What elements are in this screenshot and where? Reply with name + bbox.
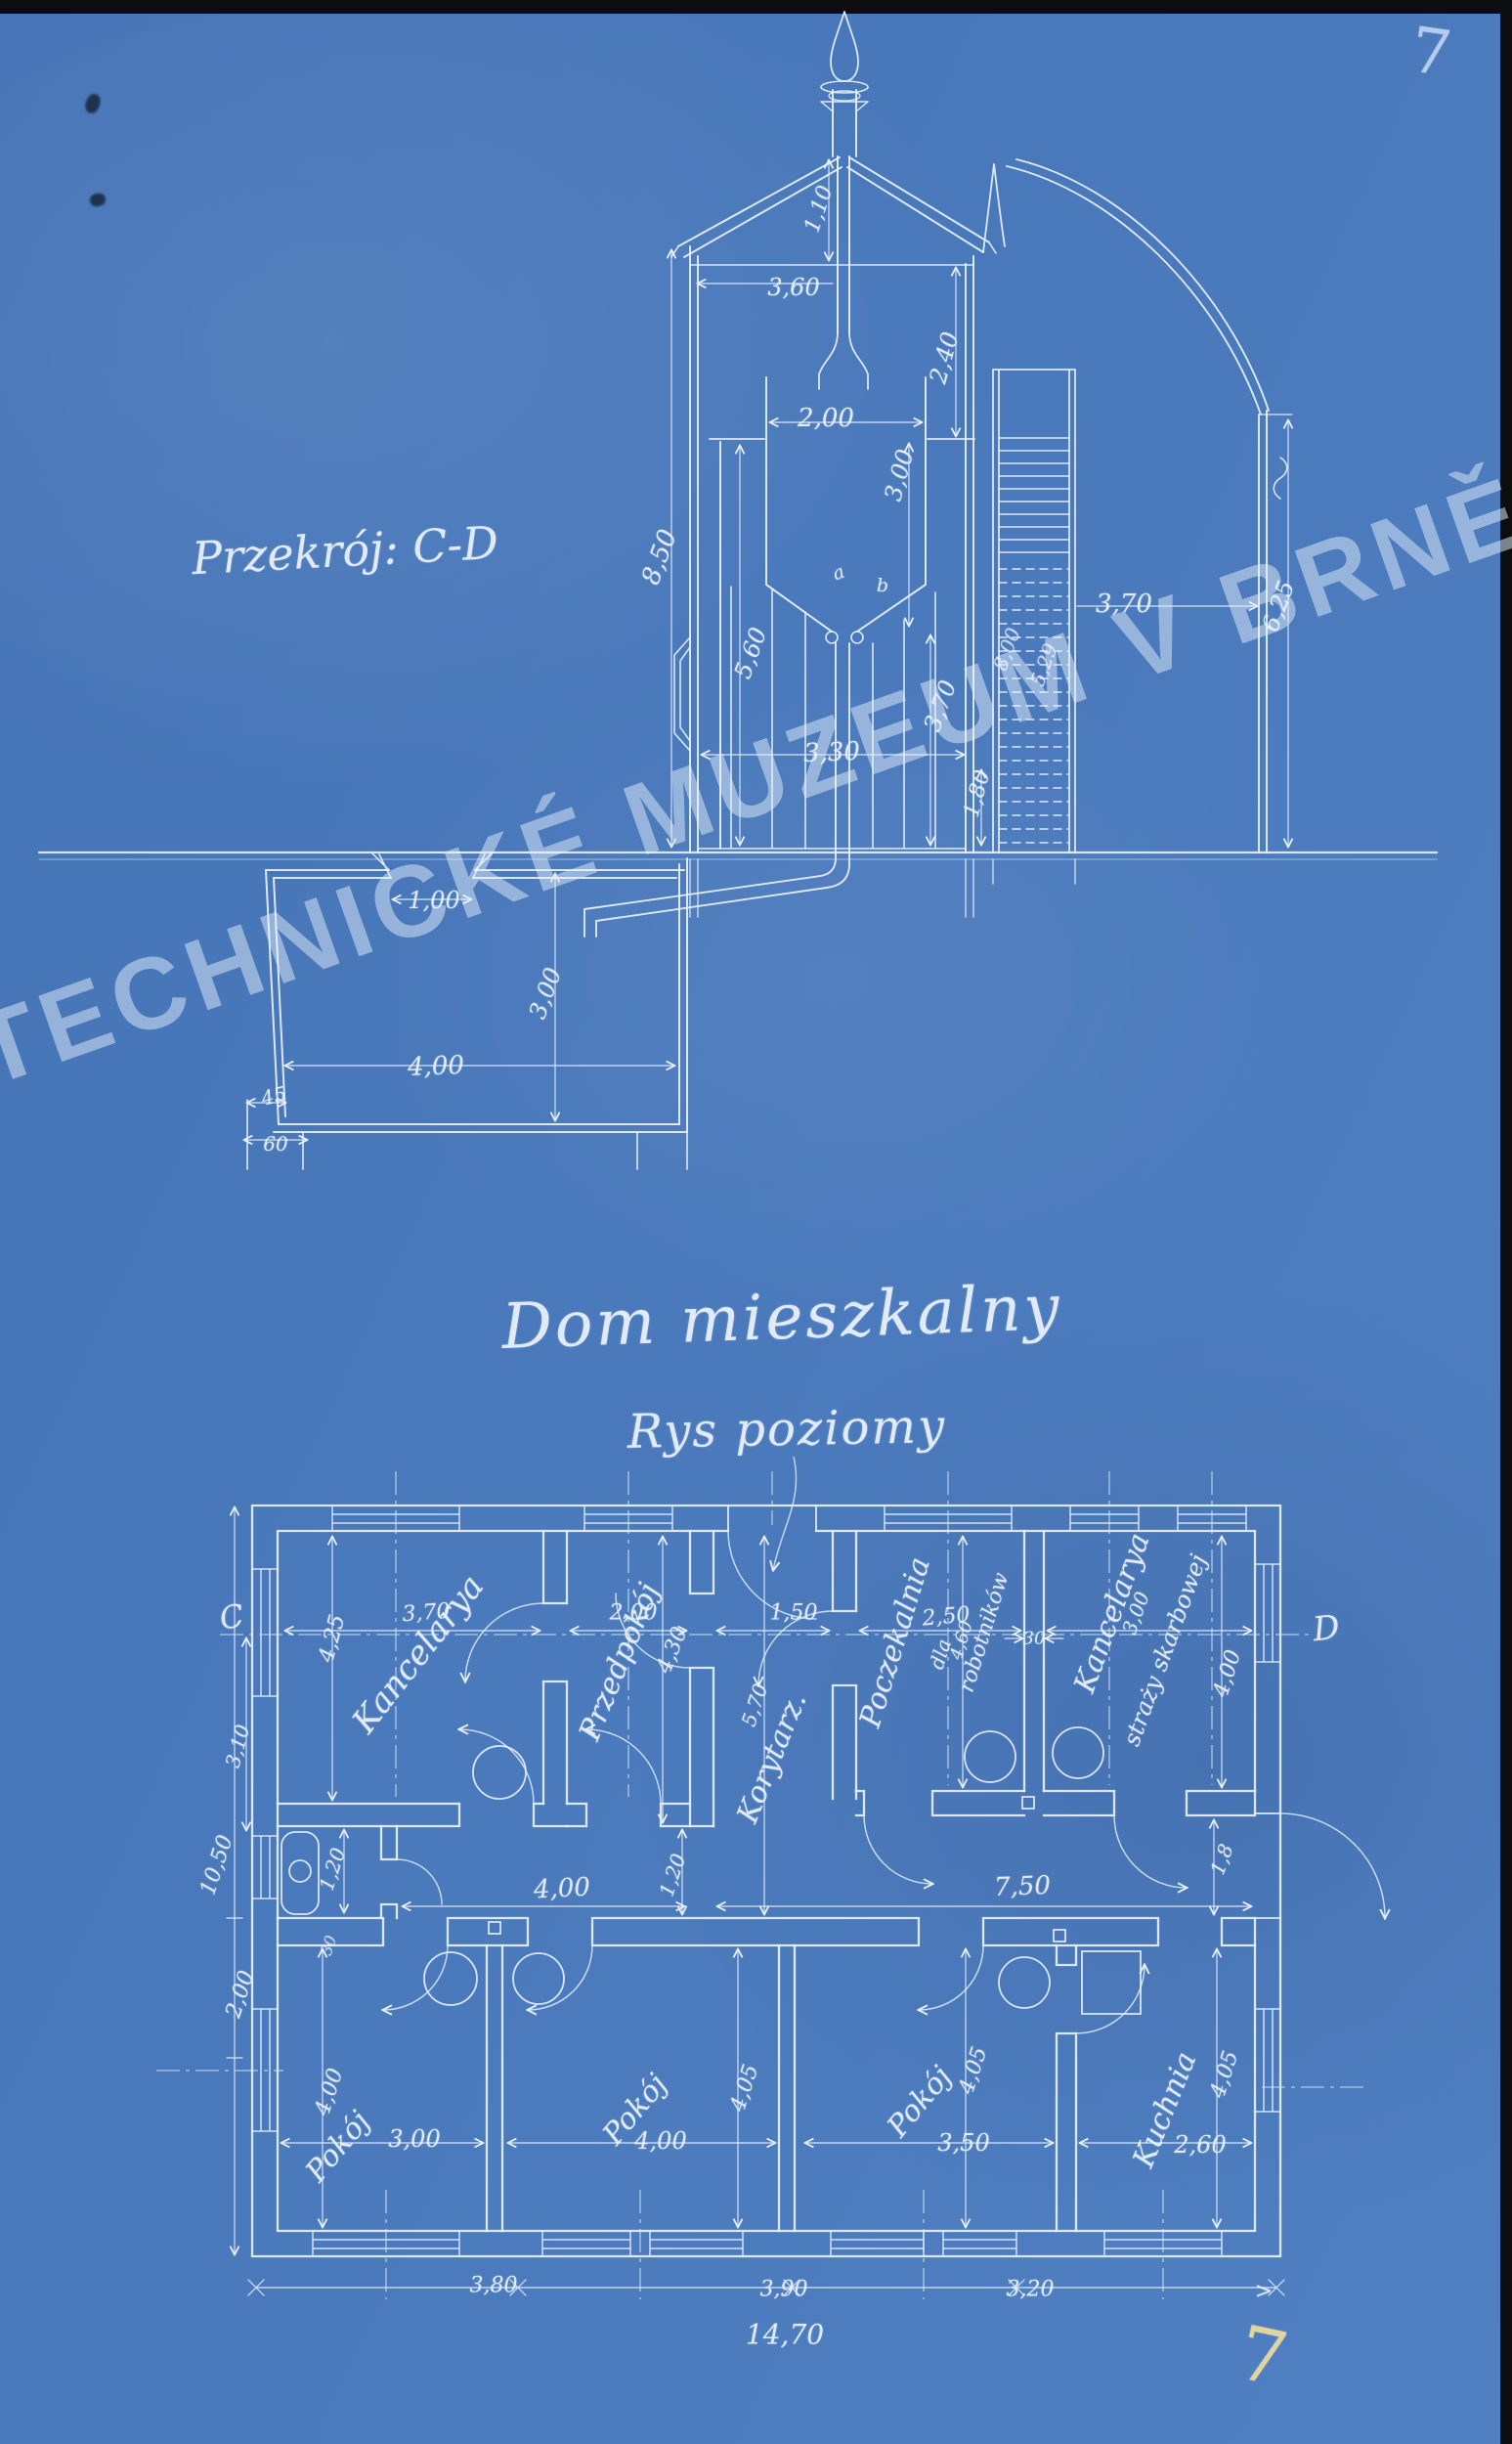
dim-hall-left: 4,00 [533, 1873, 590, 1905]
dim-kiln-width: 2,00 [798, 404, 854, 433]
plan-fixtures [281, 1727, 1141, 2014]
plan-door-arcs [383, 1531, 1385, 2033]
dim-room-width: 3,30 [803, 737, 861, 768]
blueprint-sheet: TECHNICKÉ MUZEUM V BRNĚ [0, 0, 1512, 2444]
dim-attic-width: 3,60 [767, 274, 819, 301]
dim-pokoj2-width: 4,00 [634, 2127, 686, 2155]
ground-line [39, 852, 1437, 917]
point-label-b: b [877, 575, 888, 596]
corner-arrow-mark: > [1255, 2280, 1273, 2304]
section-marker-d: D [1311, 1608, 1341, 1650]
dim-bottom-3: 3,20 [1007, 2278, 1055, 2302]
dim-stair-width: 3,70 [1096, 589, 1152, 619]
dim-bottom-total: 14,70 [746, 2319, 824, 2351]
dim-kuchnia-width: 2,60 [1174, 2131, 1226, 2159]
dim-cellar-footing: 60 [263, 1132, 287, 1156]
plan-subtitle: Rys poziomy [626, 1399, 946, 1460]
title-pointer-arrow [773, 1457, 797, 1570]
dim-top-korytarz: 1,50 [770, 1601, 818, 1626]
section-dim-lines [671, 160, 1292, 847]
dim-bottom-1: 3,80 [470, 2274, 518, 2298]
dim-bottom-2: 3,90 [760, 2278, 808, 2302]
dim-hall-right: 7,50 [994, 1871, 1052, 1902]
dim-pokoj3-width: 3,50 [937, 2129, 989, 2157]
dim-pokoj1-width: 3,00 [388, 2125, 440, 2153]
dim-top-wall: 30 [1023, 1629, 1046, 1649]
section-drawing [584, 12, 1287, 937]
dim-cellar-width: 4,00 [408, 1051, 465, 1082]
dim-cellar-opening: 1,00 [408, 887, 459, 914]
